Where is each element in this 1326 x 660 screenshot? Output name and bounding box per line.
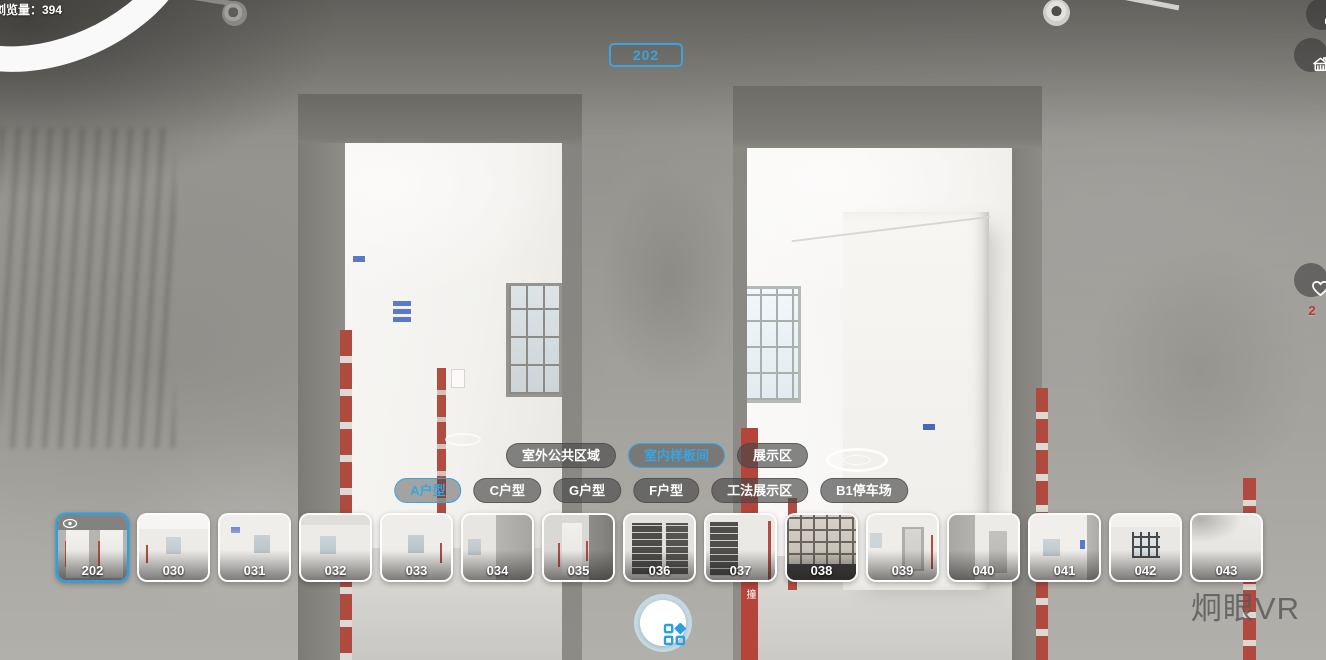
wall-label: [353, 256, 365, 262]
thumbnail-038[interactable]: 038: [785, 513, 858, 582]
brand-watermark: 炯眼VR: [1191, 583, 1300, 628]
thumbnail-033[interactable]: 033: [380, 513, 453, 582]
thumbnail-030[interactable]: 030: [137, 513, 210, 582]
scene-badge: 202: [609, 43, 683, 67]
striped-corner-guard: [340, 330, 352, 660]
thumbnail-label: 031: [220, 563, 289, 578]
wall-stain: [600, 170, 740, 390]
wall-streaks: [0, 128, 175, 448]
wall-label: [923, 424, 935, 430]
thumbnail-label: 033: [382, 563, 451, 578]
floor-marker: [445, 433, 481, 446]
floor-logo-ring: [826, 448, 888, 472]
thumbnail-202[interactable]: 202: [56, 513, 129, 582]
thumbnail-label: 039: [868, 563, 937, 578]
tab-unit-f[interactable]: F户型: [633, 478, 699, 503]
window: [506, 283, 562, 397]
thumbnail-037[interactable]: 037: [704, 513, 777, 582]
tab-construction-demo-area[interactable]: 工法展示区: [711, 478, 808, 503]
thumbnail-043[interactable]: 043: [1190, 513, 1263, 582]
thumbnail-label: 041: [1030, 563, 1099, 578]
tab-unit-g[interactable]: G户型: [553, 478, 621, 503]
tab-display-area[interactable]: 展示区: [737, 443, 808, 468]
window: [747, 286, 801, 403]
thumbnail-034[interactable]: 034: [461, 513, 534, 582]
thumbnail-036[interactable]: 036: [623, 513, 696, 582]
thumbnail-label: 038: [787, 563, 856, 578]
thumbnail-label: 030: [139, 563, 208, 578]
thumbnail-035[interactable]: 035: [542, 513, 615, 582]
wall-labels: [393, 301, 411, 323]
thumbnail-040[interactable]: 040: [947, 513, 1020, 582]
right-room: [747, 148, 1012, 660]
thumbnail-label: 043: [1192, 563, 1261, 578]
thumbnail-032[interactable]: 032: [299, 513, 372, 582]
pipe-flange: [1043, 0, 1070, 26]
tab-unit-c[interactable]: C户型: [474, 478, 541, 503]
thumbnail-label: 042: [1111, 563, 1180, 578]
thumbnail-label: 034: [463, 563, 532, 578]
thumbnail-label: 037: [706, 563, 775, 578]
favorite-button[interactable]: [1294, 263, 1326, 297]
tab-unit-a[interactable]: A户型: [394, 478, 461, 503]
thumbnail-042[interactable]: 042: [1109, 513, 1182, 582]
category-tabs: 室外公共区域 室内样板间 展示区: [506, 443, 808, 468]
property-overview-button[interactable]: [1294, 38, 1326, 72]
unit-tabs: A户型 C户型 G户型 F户型 工法展示区 B1停车场: [394, 478, 908, 503]
thumbnail-label: 040: [949, 563, 1018, 578]
view-count: 浏览量：394: [0, 1, 62, 18]
scene-thumbnail-strip: 202 030 031: [56, 513, 1263, 582]
thumbnail-label: 036: [625, 563, 694, 578]
thumbnail-label: 032: [301, 563, 370, 578]
favorite-count: 2: [1306, 303, 1318, 318]
wall-stain: [1090, 240, 1310, 500]
wall-card: [451, 369, 465, 388]
thumbnail-041[interactable]: 041: [1028, 513, 1101, 582]
left-room: [345, 143, 562, 660]
tab-b1-parking[interactable]: B1停车场: [820, 478, 908, 503]
scene-menu-button[interactable]: [634, 594, 692, 652]
thumbnail-031[interactable]: 031: [218, 513, 291, 582]
vr-viewer: 小心碰撞 浏览量：394 202 2: [0, 0, 1326, 660]
thumbnail-label: 035: [544, 563, 613, 578]
thumbnail-label: 202: [58, 563, 127, 578]
thumbnail-039[interactable]: 039: [866, 513, 939, 582]
door-jamb: [298, 143, 345, 660]
tab-outdoor-public-area[interactable]: 室外公共区域: [506, 443, 616, 468]
tab-indoor-model-room[interactable]: 室内样板间: [628, 443, 725, 468]
pipe-flange: [222, 1, 247, 26]
